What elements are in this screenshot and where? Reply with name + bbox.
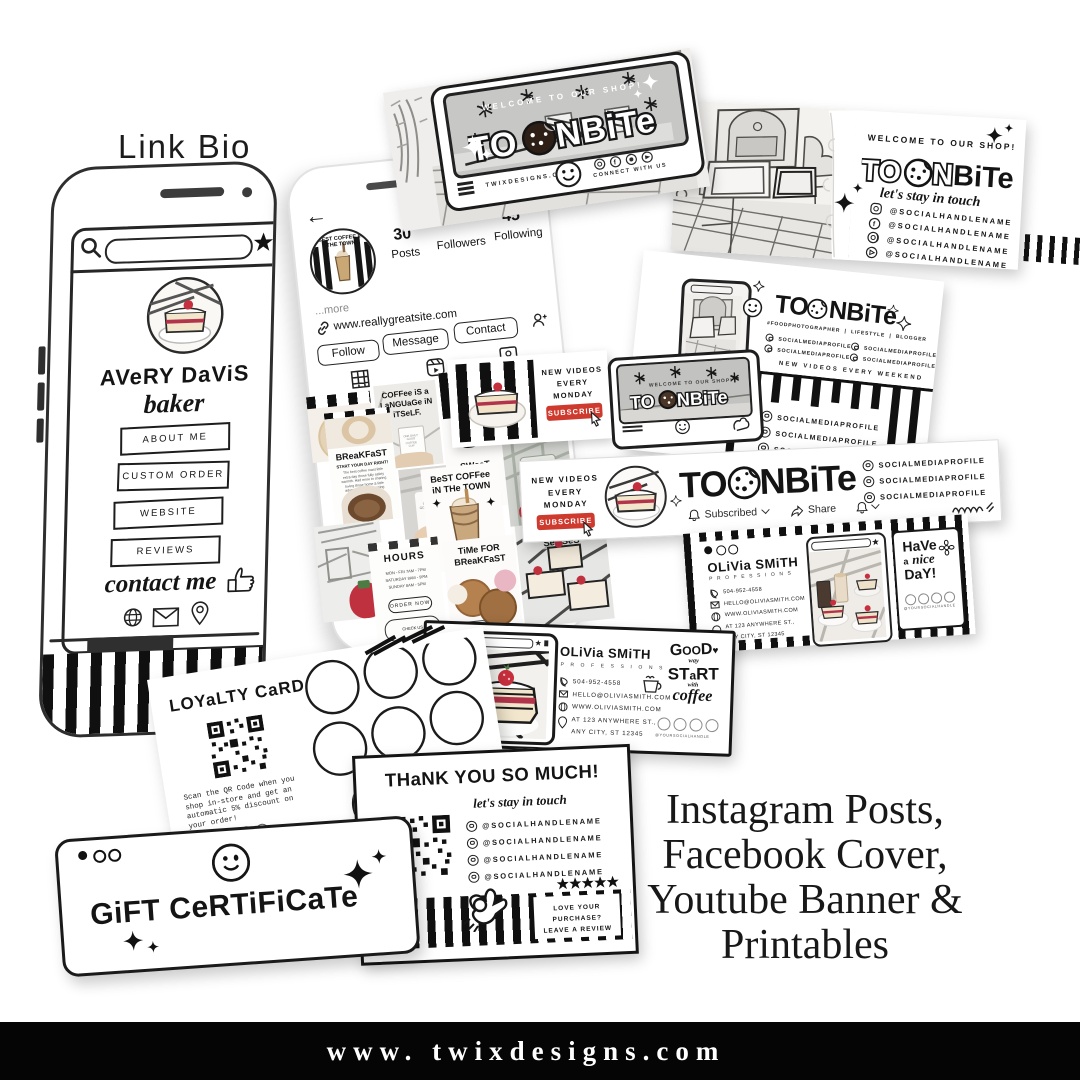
svg-text:f: f — [872, 221, 876, 228]
svg-text:TO: TO — [860, 155, 902, 189]
svg-text:NBiTe: NBiTe — [676, 387, 728, 410]
svg-text:N: N — [931, 159, 954, 192]
svg-text:BiTe: BiTe — [952, 160, 1014, 195]
svg-text:TO: TO — [629, 391, 655, 412]
svg-text:NBiTe: NBiTe — [553, 101, 659, 155]
svg-text:f: f — [613, 159, 617, 166]
